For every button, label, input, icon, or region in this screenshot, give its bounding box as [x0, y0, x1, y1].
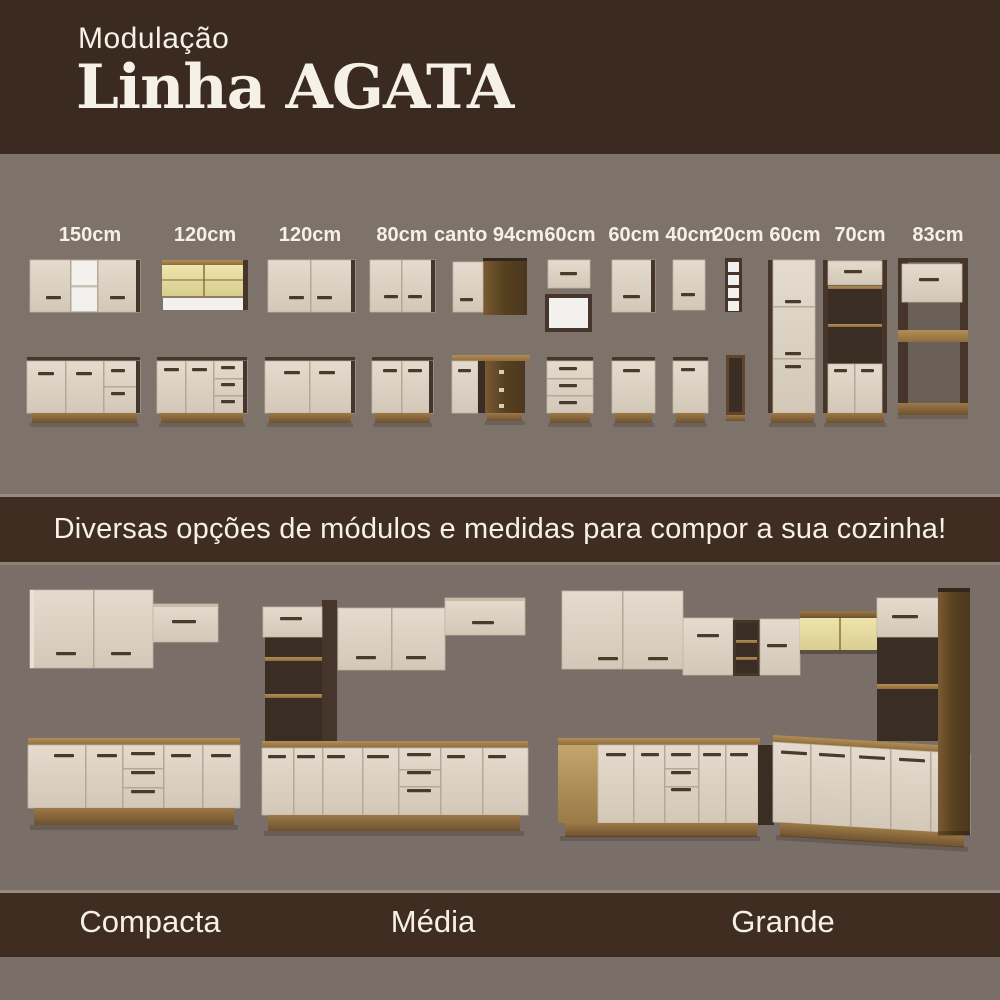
door-handle	[76, 372, 92, 375]
module-size-label-11: 70cm	[834, 224, 885, 247]
door-handle	[785, 300, 801, 303]
door-handle	[56, 652, 76, 655]
door-handle	[919, 278, 939, 281]
door-handle	[671, 788, 691, 791]
module-size-label-2: 120cm	[174, 224, 236, 247]
door-handle	[703, 753, 721, 756]
door-handle	[221, 383, 235, 386]
door-handle	[408, 369, 422, 372]
kitchen-label-media: Média	[391, 904, 475, 940]
door-handle	[408, 295, 422, 298]
header-kicker: Modulação	[78, 22, 229, 56]
door-handle	[641, 753, 659, 756]
door-handle	[560, 272, 577, 275]
door-handle	[606, 753, 626, 756]
door-handle	[131, 752, 155, 755]
module-12-83cm-tall	[898, 258, 968, 419]
door-handle	[268, 755, 286, 758]
door-handle	[221, 366, 235, 369]
door-handle	[488, 755, 506, 758]
module-size-label-5: canto 94cm	[434, 224, 544, 247]
door-handle	[681, 293, 695, 296]
door-handle	[681, 368, 695, 371]
door-handle	[111, 652, 131, 655]
door-handle	[447, 755, 465, 758]
door-handle	[648, 657, 668, 660]
door-handle	[110, 296, 125, 299]
promo-graphic: Modulação Linha AGATA 150cm 120cm 120cm …	[0, 0, 1000, 1000]
door-handle	[697, 634, 719, 637]
module-size-label-10: 60cm	[769, 224, 820, 247]
door-handle	[319, 371, 335, 374]
cabinet-artwork	[0, 0, 1000, 1000]
door-handle	[407, 753, 431, 756]
door-handle	[131, 790, 155, 793]
door-handle	[559, 384, 577, 387]
kitchen-compacta-illustration	[28, 590, 240, 830]
door-handle	[171, 754, 191, 757]
module-size-label-8: 40cm	[665, 224, 716, 247]
kitchen-label-grande: Grande	[731, 904, 834, 940]
door-handle	[289, 296, 304, 299]
module-size-label-7: 60cm	[608, 224, 659, 247]
page-title: Linha AGATA	[76, 52, 513, 123]
door-handle	[211, 754, 231, 757]
kitchen-grande-tall-side-panel	[938, 588, 970, 836]
module-size-label-6: 60cm	[544, 224, 595, 247]
module-07-60cm	[612, 260, 655, 427]
door-handle	[284, 371, 300, 374]
door-handle	[111, 369, 125, 372]
door-handle	[406, 656, 426, 659]
door-handle	[54, 754, 74, 757]
door-handle	[317, 296, 332, 299]
banner-text: Diversas opções de módulos e medidas par…	[54, 513, 947, 546]
door-handle	[356, 656, 376, 659]
door-handle	[407, 771, 431, 774]
door-handle	[623, 295, 640, 298]
module-size-label-9: 20cm	[712, 224, 763, 247]
door-handle	[892, 615, 918, 618]
module-11-70cm-tall	[823, 260, 887, 427]
module-02-120cm-glass	[157, 260, 248, 427]
module-04-80cm	[370, 260, 435, 427]
door-handle	[111, 392, 125, 395]
door-handle	[164, 368, 179, 371]
door-handle	[623, 369, 640, 372]
door-handle	[458, 369, 471, 372]
door-handle	[407, 789, 431, 792]
kitchen-label-compacta: Compacta	[79, 904, 220, 940]
door-handle	[38, 372, 54, 375]
door-handle	[221, 400, 235, 403]
module-size-label-1: 150cm	[59, 224, 121, 247]
door-handle	[671, 753, 691, 756]
door-handle	[598, 657, 618, 660]
module-01-150cm	[27, 260, 140, 427]
door-handle	[327, 755, 345, 758]
door-handle	[172, 620, 196, 623]
door-handle	[559, 367, 577, 370]
module-06-60cm-niche	[545, 260, 593, 427]
module-size-label-12: 83cm	[912, 224, 963, 247]
door-handle	[297, 755, 315, 758]
door-handle	[671, 771, 691, 774]
door-handle	[97, 754, 117, 757]
door-handle	[472, 621, 494, 624]
door-handle	[384, 295, 398, 298]
module-size-label-3: 120cm	[279, 224, 341, 247]
door-handle	[785, 352, 801, 355]
door-handle	[834, 369, 847, 372]
door-handle	[367, 755, 389, 758]
door-handle	[767, 644, 787, 647]
module-05-canto-94cm	[452, 258, 530, 425]
module-08-40cm	[673, 260, 708, 427]
module-size-label-4: 80cm	[376, 224, 427, 247]
door-handle	[785, 365, 801, 368]
door-handle	[131, 771, 155, 774]
door-handle	[559, 401, 577, 404]
module-09-20cm-rack	[725, 258, 745, 421]
door-handle	[844, 270, 862, 273]
module-03-120cm	[265, 260, 355, 427]
door-handle	[861, 369, 874, 372]
door-handle	[280, 617, 302, 620]
door-handle	[192, 368, 207, 371]
door-handle	[730, 753, 748, 756]
door-handle	[460, 298, 473, 301]
door-handle	[46, 296, 61, 299]
kitchen-media-illustration	[262, 598, 528, 836]
door-handle	[383, 369, 397, 372]
module-10-60cm-tall	[768, 260, 816, 427]
